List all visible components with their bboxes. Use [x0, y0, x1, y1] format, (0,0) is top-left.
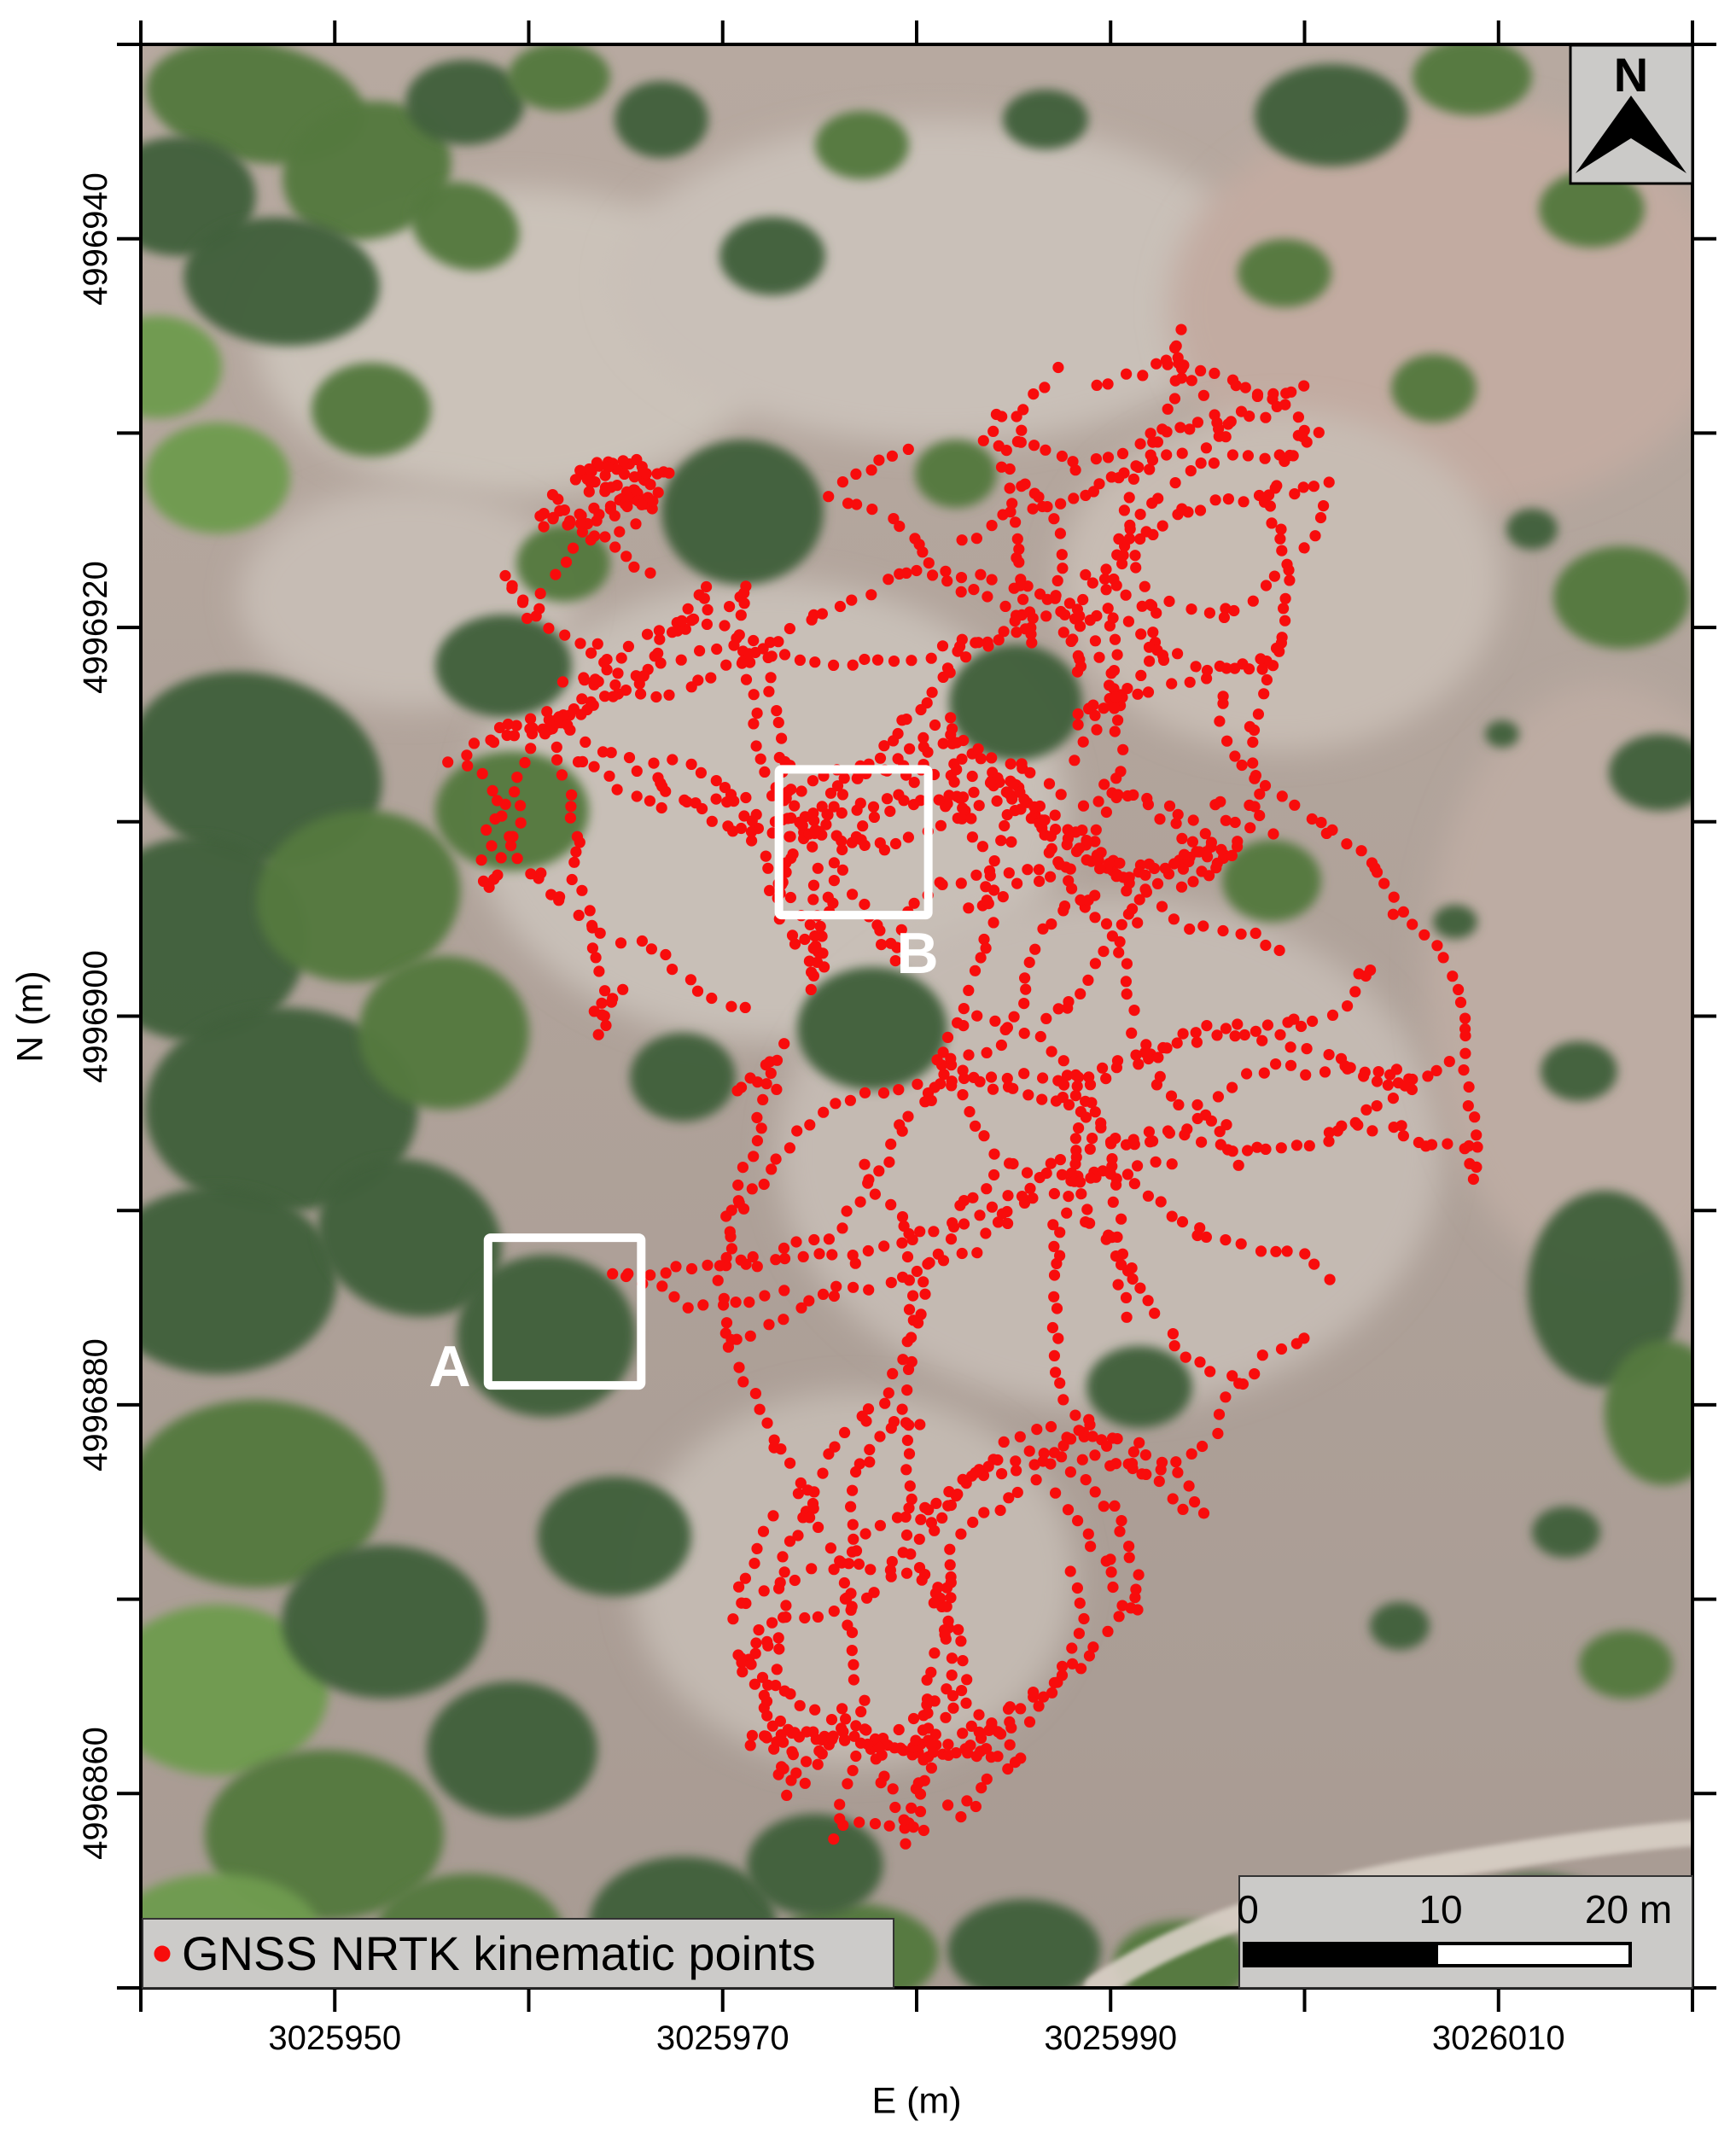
gnss-point [1104, 1553, 1116, 1565]
gnss-point [721, 1252, 732, 1263]
gnss-point [958, 1065, 969, 1076]
vegetation-patch [1086, 1346, 1192, 1428]
gnss-point [957, 1655, 968, 1666]
gnss-point [1024, 957, 1035, 968]
gnss-point [702, 619, 713, 630]
gnss-point [1025, 622, 1036, 633]
gnss-point [1052, 1303, 1063, 1314]
gnss-point [1212, 1428, 1223, 1439]
gnss-point [566, 790, 577, 801]
gnss-point [1276, 638, 1287, 649]
gnss-point [1070, 1090, 1081, 1101]
gnss-point [705, 673, 716, 684]
gnss-point [1398, 906, 1409, 918]
gnss-point [736, 1652, 747, 1664]
gnss-point [1378, 878, 1389, 889]
gnss-point [1239, 1029, 1250, 1040]
gnss-point [1091, 825, 1102, 836]
gnss-point [759, 766, 770, 778]
gnss-point [1284, 574, 1295, 586]
gnss-point [1134, 894, 1145, 905]
gnss-point [1111, 869, 1122, 880]
gnss-point [929, 1525, 940, 1536]
gnss-point [535, 588, 546, 599]
gnss-point [1108, 1197, 1119, 1208]
gnss-point [923, 557, 935, 568]
gnss-point [813, 1611, 824, 1623]
gnss-point [568, 857, 580, 868]
vegetation-patch [1579, 1630, 1673, 1699]
gnss-point [1173, 353, 1184, 364]
gnss-point [1107, 1582, 1118, 1593]
gnss-point [869, 1587, 880, 1598]
gnss-point [799, 934, 810, 945]
gnss-point [1037, 1072, 1048, 1083]
gnss-point [1307, 813, 1318, 825]
gnss-point [982, 640, 993, 651]
gnss-point [476, 854, 487, 865]
gnss-point [648, 758, 659, 769]
gnss-point [855, 1706, 866, 1717]
gnss-point [1011, 626, 1022, 638]
gnss-point [860, 1724, 871, 1735]
gnss-point [1293, 411, 1304, 423]
x-axis-tick-label: 3025970 [656, 2021, 789, 2055]
gnss-point [926, 1740, 937, 1751]
gnss-point [946, 1080, 957, 1091]
gnss-point [1210, 494, 1221, 505]
gnss-point [782, 813, 793, 824]
gnss-point [970, 1801, 982, 1812]
gnss-point [983, 1461, 994, 1472]
gnss-point [1152, 1052, 1163, 1063]
gnss-point [804, 1119, 815, 1130]
gnss-point [1185, 465, 1197, 476]
gnss-point [1147, 529, 1158, 540]
gnss-point [531, 610, 542, 621]
gnss-point [1143, 1191, 1154, 1202]
gnss-point [931, 1054, 942, 1065]
gnss-point [1140, 1449, 1151, 1460]
gnss-point [1063, 1191, 1074, 1202]
gnss-point [848, 1674, 859, 1685]
gnss-point [1169, 393, 1180, 404]
gnss-point [834, 1799, 845, 1810]
gnss-point [980, 881, 991, 892]
gnss-point [1187, 836, 1198, 848]
gnss-point [1236, 929, 1247, 940]
gnss-point [1152, 878, 1163, 889]
gnss-point [1121, 976, 1132, 987]
legend-label: GNSS NRTK kinematic points [182, 1930, 816, 1978]
gnss-point [1176, 882, 1187, 893]
gnss-point [809, 656, 820, 667]
gnss-point [761, 1710, 772, 1722]
gnss-point [1083, 1071, 1094, 1082]
gnss-point [1049, 1350, 1060, 1361]
gnss-point [1308, 481, 1319, 492]
gnss-point [469, 737, 480, 749]
gnss-point [637, 935, 648, 947]
gnss-point [873, 455, 884, 466]
gnss-point [848, 1765, 859, 1776]
vegetation-patch [719, 217, 825, 295]
gnss-point [1211, 1029, 1222, 1040]
gnss-point [1168, 913, 1180, 924]
gnss-point [1163, 596, 1174, 607]
gnss-point [1050, 1367, 1061, 1378]
vegetation-patch [1506, 509, 1558, 550]
gnss-point [927, 569, 938, 580]
gnss-point [776, 733, 787, 744]
gnss-point [620, 685, 632, 696]
gnss-point [1274, 449, 1285, 460]
gnss-point [1083, 1529, 1094, 1540]
gnss-point [503, 719, 514, 730]
gnss-point [1073, 708, 1084, 720]
gnss-point [737, 1376, 749, 1387]
vegetation-patch [1255, 64, 1408, 166]
gnss-point [912, 1266, 923, 1277]
gnss-point [806, 967, 817, 978]
gnss-point [507, 580, 518, 592]
gnss-point [650, 691, 661, 702]
gnss-point [1275, 524, 1286, 535]
gnss-point [868, 801, 879, 813]
gnss-point [1010, 1757, 1021, 1768]
gnss-point [690, 797, 701, 808]
gnss-point [834, 1813, 845, 1824]
gnss-point [922, 1675, 933, 1686]
gnss-point [837, 789, 848, 800]
gnss-point [830, 1098, 841, 1109]
gnss-point [1016, 425, 1027, 436]
gnss-point [1024, 1446, 1035, 1457]
gnss-point [1280, 593, 1291, 604]
gnss-point [1109, 1501, 1120, 1512]
gnss-point [863, 1245, 874, 1256]
gnss-point [1186, 1448, 1197, 1460]
gnss-point [1114, 1526, 1125, 1537]
gnss-point [1307, 1016, 1318, 1027]
vegetation-patch [747, 1814, 883, 1916]
gnss-point [914, 1226, 925, 1237]
gnss-point [1098, 1501, 1110, 1512]
gnss-point [1177, 448, 1188, 459]
gnss-point [887, 1368, 898, 1379]
gnss-point [462, 761, 473, 772]
gnss-point [1045, 871, 1056, 883]
gnss-point [746, 1658, 757, 1670]
gnss-point [1388, 909, 1399, 920]
gnss-point [938, 1069, 949, 1080]
gnss-point [1215, 844, 1226, 855]
gnss-point [692, 986, 703, 997]
gnss-point [817, 1468, 828, 1479]
gnss-point [883, 574, 894, 585]
gnss-point [606, 747, 617, 758]
gnss-point [1110, 634, 1121, 645]
gnss-point [942, 1032, 953, 1043]
gnss-point [987, 1202, 998, 1213]
gnss-point [1084, 1650, 1095, 1661]
vegetation-patch [1433, 905, 1477, 939]
gnss-point [1073, 720, 1084, 731]
gnss-point [763, 1319, 774, 1330]
gnss-point [1124, 533, 1135, 545]
gnss-point [1047, 1219, 1058, 1230]
gnss-point [757, 1094, 768, 1105]
gnss-point [1018, 998, 1029, 1009]
gnss-point [941, 575, 952, 586]
gnss-point [1350, 1117, 1361, 1128]
gnss-point [1072, 1081, 1083, 1092]
gnss-point [888, 735, 899, 746]
gnss-point [1075, 621, 1086, 632]
gnss-point [576, 885, 587, 896]
gnss-point [1015, 1431, 1026, 1442]
gnss-point [1066, 883, 1077, 895]
gnss-point [557, 676, 568, 687]
vegetation-patch [508, 43, 610, 111]
gnss-point [1400, 1081, 1411, 1092]
gnss-point [706, 993, 717, 1004]
gnss-point [989, 855, 1000, 866]
gnss-point [1097, 1063, 1108, 1074]
gnss-point [1197, 1441, 1208, 1452]
gnss-point [789, 1727, 801, 1738]
gnss-point [1103, 603, 1114, 614]
vegetation-patch [282, 1545, 486, 1699]
gnss-point [898, 1547, 909, 1558]
gnss-point [842, 1620, 853, 1631]
gnss-point [1087, 577, 1098, 588]
gnss-point [1289, 800, 1300, 811]
scalebar-label: 20 m [1585, 1890, 1672, 1929]
gnss-point [1244, 822, 1255, 833]
gnss-point [974, 800, 985, 811]
gnss-point [850, 1258, 861, 1269]
vegetation-patch [949, 644, 1082, 761]
gnss-point [847, 1645, 858, 1656]
gnss-point [1070, 1145, 1081, 1156]
gnss-point [885, 1565, 896, 1576]
gnss-point [1459, 1048, 1471, 1059]
gnss-point [1278, 603, 1289, 614]
gnss-point [725, 1001, 737, 1012]
gnss-point [562, 720, 573, 731]
gnss-point [1065, 864, 1076, 875]
gnss-point [743, 648, 754, 659]
gnss-point [749, 1558, 760, 1569]
gnss-point [1274, 1029, 1285, 1040]
gnss-point [1090, 635, 1101, 646]
gnss-point [751, 1112, 762, 1123]
gnss-point [1123, 1541, 1134, 1552]
gnss-point [1325, 1274, 1336, 1285]
gnss-point [605, 481, 616, 492]
gnss-point [947, 1217, 958, 1228]
gnss-point [696, 767, 707, 778]
gnss-point [1085, 1541, 1096, 1552]
gnss-point [1078, 801, 1089, 812]
gnss-point [859, 1159, 870, 1170]
gnss-point [1469, 1111, 1480, 1122]
gnss-point [785, 831, 796, 842]
gnss-point [1198, 1507, 1209, 1518]
gnss-point [955, 1635, 966, 1646]
gnss-point [1360, 1104, 1372, 1116]
gnss-point [1113, 947, 1124, 958]
gnss-point [1075, 1598, 1086, 1609]
gnss-point [1086, 1133, 1098, 1144]
gnss-point [773, 1632, 784, 1643]
gnss-point [926, 1095, 937, 1106]
gnss-point [851, 1545, 862, 1556]
gnss-point [908, 1713, 919, 1724]
gnss-point [1022, 1089, 1034, 1100]
gnss-point [834, 1555, 845, 1566]
gnss-point [977, 841, 988, 852]
gnss-point [957, 1089, 968, 1100]
gnss-point [1299, 542, 1310, 553]
gnss-point [628, 562, 639, 573]
gnss-point [734, 629, 745, 640]
gnss-point [1034, 876, 1045, 887]
gnss-point [985, 778, 996, 789]
gnss-point [1065, 1466, 1076, 1477]
gnss-point [885, 938, 896, 949]
gnss-point [808, 880, 819, 891]
gnss-point [487, 785, 498, 796]
gnss-point [1186, 375, 1197, 386]
gnss-point [1091, 724, 1102, 735]
gnss-point [484, 882, 495, 893]
gnss-point [958, 1474, 969, 1485]
gnss-point [1075, 1188, 1086, 1199]
gnss-point [1204, 1366, 1215, 1377]
gnss-point [1213, 1091, 1224, 1102]
gnss-point [1139, 581, 1151, 592]
gnss-point [656, 781, 667, 792]
gnss-point [961, 1674, 972, 1685]
gnss-point [1116, 919, 1127, 930]
gnss-point [721, 1317, 732, 1328]
gnss-point [789, 1575, 801, 1586]
gnss-point [574, 509, 585, 520]
gnss-point [486, 840, 497, 851]
gnss-point [926, 653, 937, 664]
gnss-point [884, 806, 895, 817]
gnss-point [752, 1261, 763, 1272]
gnss-point [1004, 1157, 1015, 1168]
gnss-point [1164, 1128, 1175, 1139]
gnss-point [955, 1529, 966, 1540]
gnss-point [699, 593, 710, 604]
gnss-point [1168, 1328, 1179, 1339]
gnss-point [1261, 674, 1273, 685]
gnss-point [740, 1002, 751, 1013]
gnss-point [720, 1210, 731, 1221]
x-axis-tick-label: 3026010 [1432, 2021, 1565, 2055]
vegetation-patch [358, 956, 529, 1110]
gnss-point [745, 1740, 756, 1751]
gnss-point [1156, 1196, 1167, 1207]
gnss-point [1121, 683, 1133, 694]
gnss-point [1046, 1687, 1057, 1699]
gnss-point [652, 469, 663, 480]
gnss-point [525, 714, 536, 725]
gnss-point [993, 634, 1005, 645]
gnss-point [1147, 436, 1158, 447]
gnss-point [1099, 574, 1110, 585]
gnss-point [942, 1739, 953, 1750]
gnss-point [935, 877, 946, 888]
gnss-point [987, 426, 999, 437]
gnss-point [1031, 1474, 1042, 1485]
gnss-point [1113, 533, 1124, 545]
gnss-point [919, 1502, 930, 1513]
gnss-point [1279, 399, 1290, 411]
gnss-point [1057, 562, 1068, 574]
gnss-point [609, 541, 620, 552]
gnss-point [1218, 691, 1229, 702]
gnss-point [982, 1047, 993, 1058]
gnss-point [876, 939, 887, 950]
gnss-point [947, 1703, 958, 1714]
gnss-point [1129, 1592, 1140, 1603]
gnss-point [1219, 612, 1230, 623]
gnss-point [736, 1598, 747, 1609]
gnss-point [719, 1293, 730, 1304]
gnss-point [654, 634, 665, 645]
gnss-point [1077, 594, 1088, 605]
vegetation-patch [312, 363, 431, 457]
gnss-point [1356, 845, 1367, 856]
gnss-point [875, 837, 886, 848]
gnss-point [995, 1505, 1006, 1516]
gnss-point [903, 1364, 914, 1375]
gnss-point [943, 1750, 954, 1761]
gnss-point [1098, 946, 1109, 957]
gnss-point [1081, 854, 1092, 865]
gnss-point [1309, 530, 1320, 541]
gnss-point [1146, 498, 1157, 509]
gnss-point [1056, 789, 1067, 800]
gnss-point [1247, 757, 1258, 768]
gnss-point [1232, 836, 1243, 847]
gnss-point [1185, 677, 1196, 688]
gnss-point [896, 714, 907, 726]
gnss-point [568, 543, 579, 554]
gnss-point [1067, 1658, 1078, 1670]
gnss-point [1018, 1068, 1029, 1079]
gnss-point [1209, 409, 1220, 420]
gnss-point [632, 790, 643, 801]
gnss-point [1090, 1106, 1101, 1117]
gnss-point [836, 844, 848, 855]
gnss-point [845, 1588, 856, 1599]
gnss-point [623, 641, 634, 652]
gnss-point [1048, 1291, 1059, 1303]
gnss-point [1195, 365, 1206, 376]
gnss-point [1005, 506, 1016, 517]
gnss-point [1066, 1642, 1077, 1653]
gnss-point [813, 863, 824, 874]
gnss-point [766, 1163, 777, 1174]
gnss-point [1271, 480, 1282, 491]
gnss-point [1038, 1455, 1049, 1466]
